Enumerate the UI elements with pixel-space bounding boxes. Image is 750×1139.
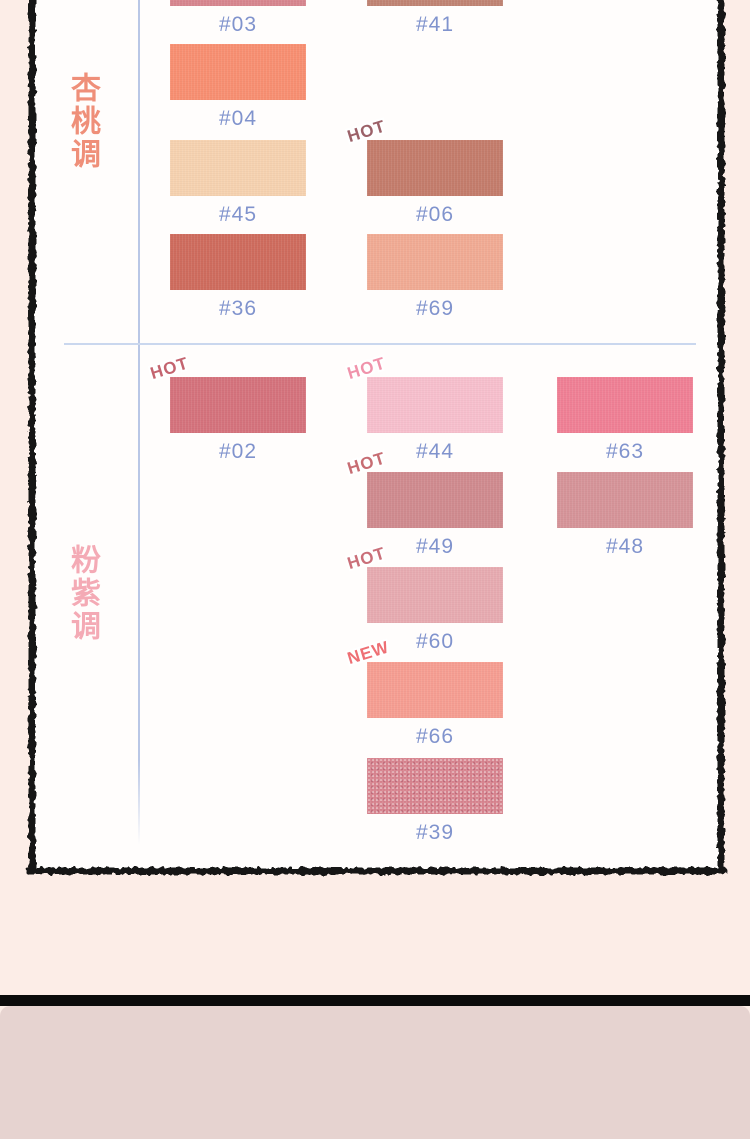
swatch-06 <box>367 140 503 196</box>
swatch-cell-41: #41 <box>367 0 503 37</box>
swatch-cell-39: #39 <box>367 758 503 845</box>
swatch-60 <box>367 567 503 623</box>
swatch-cell-06: HOT#06 <box>367 140 503 227</box>
section-label-apricot: 杏桃调 <box>65 72 99 171</box>
swatch-66 <box>367 662 503 718</box>
swatch-code-04: #04 <box>170 107 306 131</box>
swatch-code-39: #39 <box>367 821 503 845</box>
swatch-02 <box>170 377 306 433</box>
swatch-code-66: #66 <box>367 725 503 749</box>
footer-panel <box>0 1006 750 1139</box>
swatch-69 <box>367 234 503 290</box>
swatch-63 <box>557 377 693 433</box>
swatch-code-41: #41 <box>367 13 503 37</box>
swatch-code-36: #36 <box>170 297 306 321</box>
tone-divider-horizontal <box>64 343 696 345</box>
swatch-49 <box>367 472 503 528</box>
swatch-code-69: #69 <box>367 297 503 321</box>
swatch-code-03: #03 <box>170 13 306 37</box>
swatch-41 <box>367 0 503 6</box>
tone-divider-vertical <box>138 0 140 845</box>
swatch-code-45: #45 <box>170 203 306 227</box>
swatch-48 <box>557 472 693 528</box>
swatch-code-44: #44 <box>367 440 503 464</box>
swatch-code-63: #63 <box>557 440 693 464</box>
swatch-code-02: #02 <box>170 440 306 464</box>
swatch-36 <box>170 234 306 290</box>
swatch-cell-63: #63 <box>557 377 693 464</box>
swatch-44 <box>367 377 503 433</box>
swatch-cell-03: #03 <box>170 0 306 37</box>
swatch-39 <box>367 758 503 814</box>
swatch-45 <box>170 140 306 196</box>
swatch-cell-48: #48 <box>557 472 693 559</box>
swatch-cell-49: HOT#49 <box>367 472 503 559</box>
swatch-03 <box>170 0 306 6</box>
footer-divider-bar <box>0 995 750 1006</box>
swatch-cell-04: #04 <box>170 44 306 131</box>
swatch-cell-69: #69 <box>367 234 503 321</box>
swatch-cell-36: #36 <box>170 234 306 321</box>
swatch-code-49: #49 <box>367 535 503 559</box>
swatch-cell-02: HOT#02 <box>170 377 306 464</box>
swatch-cell-66: NEW#66 <box>367 662 503 749</box>
swatch-cell-44: HOT#44 <box>367 377 503 464</box>
section-label-pink-purple: 粉紫调 <box>65 544 99 643</box>
swatch-04 <box>170 44 306 100</box>
swatch-cell-45: #45 <box>170 140 306 227</box>
page-background: 杏桃调 粉紫调 #03#41#04#45HOT#06#36#69HOT#02HO… <box>0 0 750 1139</box>
swatch-code-06: #06 <box>367 203 503 227</box>
swatch-code-48: #48 <box>557 535 693 559</box>
